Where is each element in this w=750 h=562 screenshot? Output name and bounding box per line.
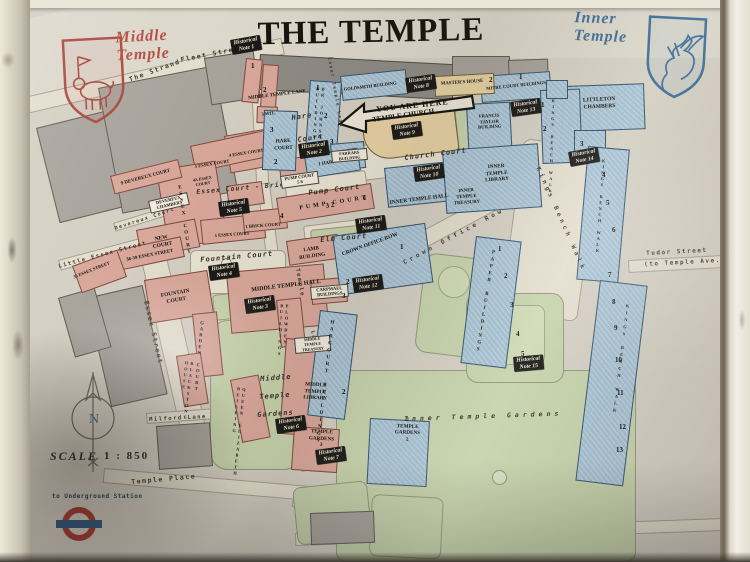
historical-note: Historical Note 3 <box>244 295 276 314</box>
street-label: Essex Street <box>142 300 164 365</box>
building-number: 1 <box>251 62 255 70</box>
building-label: INNER TEMPLE HALL <box>382 192 456 208</box>
building-number: 1 <box>498 245 502 253</box>
building-number: 9 <box>614 324 618 332</box>
court-label: Church Court <box>404 146 467 162</box>
building-label: HARE COURT <box>268 137 299 152</box>
court-label: Fountain Court <box>200 250 273 264</box>
building-label: FOUNTAIN COURT <box>155 287 197 307</box>
historical-note: Historical Note 8 <box>405 74 437 93</box>
building-label: 1 TEMPLE GARDENS 2 <box>387 416 428 443</box>
building-label-vertical: BLACKSTONE HOUSE <box>177 360 195 421</box>
building-label: PUMP COURT <box>296 194 372 213</box>
building-number: 3 <box>580 140 584 148</box>
court-label: Hare <box>291 111 313 122</box>
court-label: Gardens <box>257 408 294 419</box>
building-label: FRANCIS TAYLOR BUILDING <box>472 112 507 131</box>
historical-note: Historical Note 5 <box>218 198 250 217</box>
building-number: 3 <box>270 126 274 134</box>
building-number: 12 <box>619 423 626 431</box>
building-label: CROWN OFFICE ROW <box>338 230 402 259</box>
building-number: 5 <box>521 350 525 358</box>
building-label: NEW COURT <box>146 233 178 252</box>
court-label: Temple <box>259 391 291 401</box>
building-label-boxed: FARRARS BUILDING <box>331 148 368 163</box>
historical-note: Historical Note 13 <box>510 98 542 117</box>
building-label: 1 BRICK COURT <box>245 221 281 229</box>
court-label: Essex Court - Brick Court <box>196 177 319 196</box>
building-number: 8 <box>612 298 616 306</box>
court-label: Elm Court <box>320 232 367 244</box>
historical-note: Historical Note 14 <box>568 147 600 167</box>
building-number: 2 <box>543 125 547 133</box>
building-number: 4 <box>280 212 284 220</box>
court-label: Middle <box>260 373 292 383</box>
picture-frame-left <box>0 0 30 562</box>
street-label: Little Essex Street <box>58 240 148 269</box>
street-label: Tudor Street <box>646 247 708 257</box>
historical-note: Historical Note 1 <box>230 35 262 55</box>
building-label-vertical: ESSEX COURT <box>176 185 192 257</box>
historical-note: Historical Note 9 <box>391 121 423 140</box>
building-label: LITTLETON CHAMBERS <box>576 96 623 112</box>
building-label-vertical: DR JOHNSON'S BUILDINGS <box>310 86 326 159</box>
street-label: Temple Place <box>131 472 196 486</box>
building-label: 35 ESSEX STREET <box>72 260 111 280</box>
building-label-boxed: CARPMAEL BUILDINGS <box>310 284 349 300</box>
building-label: MITRE COURT BUILDINGS <box>486 80 546 92</box>
building-number: 2 <box>263 86 267 94</box>
building-label: 36-39 ESSEX STREET <box>120 248 180 265</box>
picture-frame-top <box>0 0 750 8</box>
street-label: The Strand <box>128 57 182 83</box>
court-label: Pump Court <box>308 183 361 197</box>
historical-note: Historical Note 6 <box>275 415 307 434</box>
building-label-vertical: PLOWDEN BUILDINGS <box>276 303 290 357</box>
historical-note: Historical Note 10 <box>413 163 445 182</box>
building-number: 1 <box>541 101 545 109</box>
framed-temple-map-photo: THE TEMPLE Middle Temple Inner Temple YO… <box>0 0 750 562</box>
building-label: 5 ESSEX COURT <box>194 158 230 169</box>
building-number: 11 <box>617 389 624 397</box>
building-label: INNER TEMPLE LIBRARY <box>476 162 517 184</box>
building-number: 3 2 <box>325 201 335 210</box>
building-number: 1 <box>519 73 523 81</box>
picture-frame-right <box>720 0 750 562</box>
building-label: GOLDSMITH BUILDING <box>342 80 398 93</box>
building-number: 1 <box>363 194 367 202</box>
building-number: 1 <box>400 243 404 251</box>
building-number: 13 <box>616 446 623 454</box>
building-label: 9 DEVEREUX COURT <box>116 167 176 189</box>
building-number: 2 <box>274 158 278 166</box>
map-labels-layer: The StrandFleet StreetLittle Essex Stree… <box>0 0 750 562</box>
building-label: MIDDLE TEMPLE HALL <box>246 278 326 295</box>
building-label-vertical: QUEEN ELIZABETH BUILDING <box>227 386 247 477</box>
street-label: Fleet Street <box>180 44 245 64</box>
street-label: Kings Bench Walk <box>535 166 588 273</box>
building-number: 2 <box>489 76 493 84</box>
building-number: 3 <box>510 301 514 309</box>
historical-note: Historical Note 2 <box>298 140 330 159</box>
historical-note: Historical Note 12 <box>352 274 384 293</box>
building-number: 2 <box>342 388 346 396</box>
building-label-vertical: GARDEN COURT <box>193 320 205 392</box>
building-number: 2 <box>324 112 328 120</box>
building-number: 7 <box>608 271 612 279</box>
building-number: 3 <box>330 138 334 146</box>
building-label-vertical: KINGS BENCH WALK <box>611 303 630 415</box>
picture-frame-bottom <box>0 552 750 562</box>
historical-note: Historical Note 15 <box>513 354 544 372</box>
building-label-boxed: DEVEREUX CHAMBERS <box>148 192 190 213</box>
building-number: 10 <box>615 356 622 364</box>
building-label: MASTER'S HOUSE <box>438 79 486 88</box>
building-label: 3 MTL <box>258 110 278 118</box>
building-number: 4 <box>516 330 520 338</box>
street-label: (to Temple Ave.) <box>644 257 726 268</box>
building-label: INNER TEMPLE TREASURY <box>446 187 487 208</box>
building-label: TEMPLE GARDENS 3 <box>303 428 340 449</box>
street-label: Milford Lane <box>149 414 207 423</box>
building-label-vertical: KINGS BENCH WALK <box>548 98 556 194</box>
court-label: Court <box>297 132 324 144</box>
building-label: 1 HARE COURT <box>315 156 357 168</box>
building-label-boxed: MIDDLE TEMPLE TREASURY <box>294 335 331 354</box>
court-label: Inner Temple Gardens <box>404 409 562 423</box>
building-label-vertical: PAPER BUILDINGS <box>474 250 497 355</box>
building-label: 4 ESSEX COURT <box>228 147 264 158</box>
building-label: MIDDLE TEMPLE LIBRARY <box>297 381 334 402</box>
building-label: LAMB BUILDING <box>292 244 331 262</box>
building-label-boxed: PUMP COURT 5 6 <box>280 171 319 189</box>
building-number: 4 <box>602 171 606 179</box>
historical-note: Historical Note 7 <box>315 446 347 465</box>
building-label: 4A ESSEX COURT <box>190 174 215 188</box>
street-label: Inner Temple Lane <box>326 57 343 128</box>
building-number: 2 <box>346 278 350 286</box>
building-number: 1 <box>316 84 320 92</box>
historical-note: Historical Note 4 <box>208 262 240 281</box>
building-number: 5 <box>606 199 610 207</box>
building-label-vertical: HARCOURT BUILDINGS <box>314 320 336 446</box>
historical-note: Historical Note 11 <box>355 215 387 234</box>
street-label: Devereux Court <box>114 206 176 231</box>
building-label-vertical: KINGS BENCH WALK <box>594 158 606 254</box>
building-number: 6 <box>612 226 616 234</box>
building-label: MIDDLE TEMPLE LANE <box>242 88 312 103</box>
building-label: 1 ESSEX COURT <box>214 230 250 238</box>
building-number: 3 <box>342 292 346 300</box>
street-label: Crown Office Row <box>402 207 506 267</box>
street-label: Lane <box>309 330 319 350</box>
building-number: 2 <box>504 272 508 280</box>
street-label: Temple <box>294 268 305 297</box>
